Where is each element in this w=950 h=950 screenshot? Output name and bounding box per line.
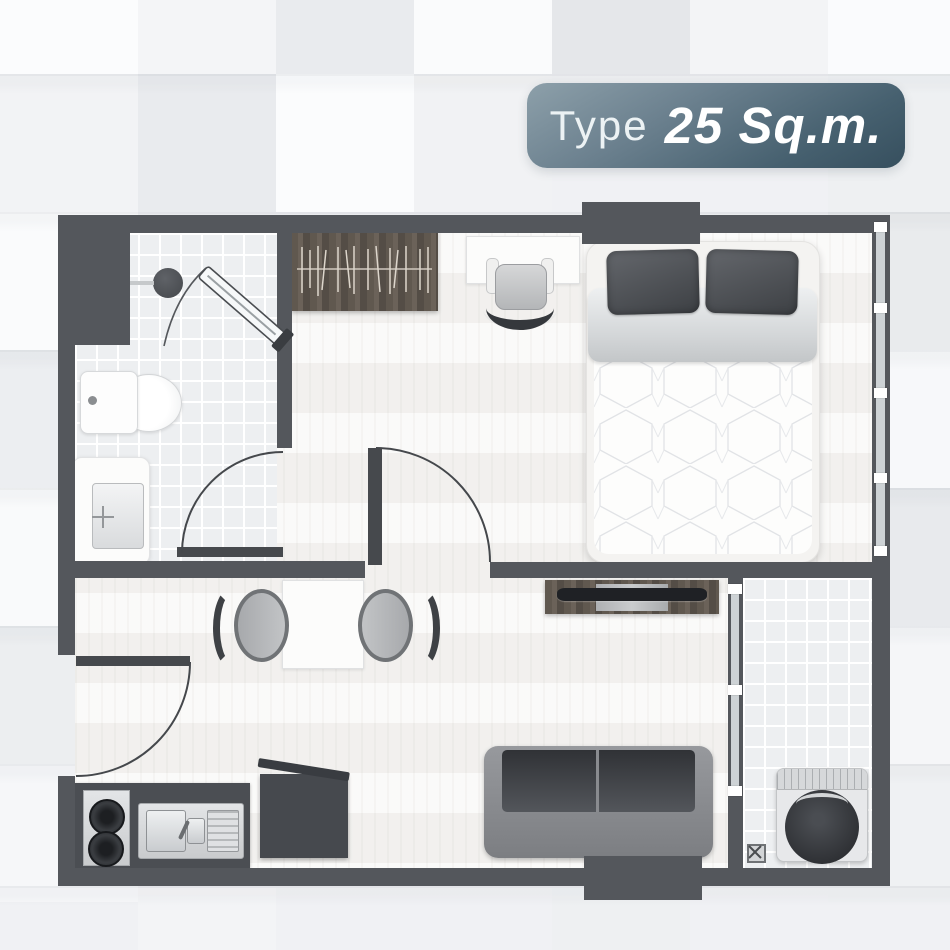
washer-control-panel	[777, 769, 867, 790]
bedroom-door-leaf	[368, 448, 382, 565]
sink-drainboard	[207, 810, 239, 852]
bathroom-door-leaf	[177, 547, 283, 557]
unit-type-badge: Type 25 Sq.m.	[527, 83, 905, 168]
floorplan-canvas: Type 25 Sq.m.	[0, 0, 950, 950]
shower-arm	[128, 281, 154, 285]
dining-table	[282, 580, 364, 669]
stove-burner-bottom	[88, 831, 124, 867]
washing-machine	[776, 768, 868, 862]
slider-mullion	[728, 786, 742, 796]
stove-burner-top	[89, 799, 125, 835]
structural-column-top	[582, 202, 700, 244]
wall-top	[58, 215, 890, 233]
slider-mullion	[728, 584, 742, 594]
floor-drain	[747, 844, 766, 863]
structural-column-bottom	[584, 856, 702, 900]
washbasin-bowl	[92, 483, 144, 549]
pillow-left	[606, 249, 700, 315]
wall-bottom	[58, 868, 890, 886]
dining-chair-left-seat	[234, 589, 289, 662]
washer-lid-handle	[796, 793, 848, 815]
entrance-door-leaf	[76, 656, 190, 666]
window-mullion	[874, 222, 887, 232]
toilet-flush-button	[88, 396, 97, 405]
dressing-chair	[486, 256, 554, 326]
pillow-right	[705, 249, 799, 315]
chair-back	[486, 286, 554, 330]
slider-mullion	[728, 685, 742, 695]
cabinet	[260, 774, 348, 858]
mid-wall-left	[58, 561, 365, 578]
window-mullion	[874, 388, 887, 398]
window-mullion	[874, 473, 887, 483]
badge-type-label: Type	[550, 102, 649, 150]
shower-head-icon	[153, 268, 183, 298]
window-mullion	[874, 546, 887, 556]
bathroom-east-wall	[277, 233, 292, 448]
kitchen-sink-unit	[138, 803, 244, 859]
bathroom-corner-column	[58, 215, 130, 345]
wardrobe	[291, 230, 438, 311]
flat-tv	[557, 588, 707, 601]
dining-chair-right-back	[404, 588, 440, 668]
wall-left-lower	[58, 776, 75, 886]
mid-wall-right	[490, 562, 872, 578]
window-mullion	[874, 303, 887, 313]
sofa-cushion-divider	[596, 750, 599, 812]
badge-size-label: 25 Sq.m.	[665, 96, 883, 155]
